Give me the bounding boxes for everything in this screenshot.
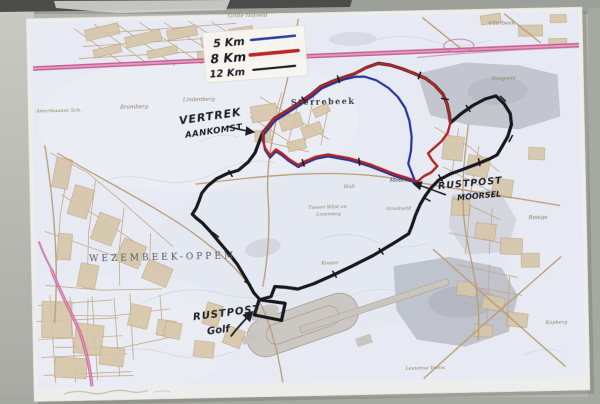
map-label-grootveld: Grootveld <box>386 206 411 213</box>
map-label-rooige: Rooige <box>527 215 548 221</box>
map-label-bromberg: Bromberg <box>119 104 149 111</box>
route-map-photo: Grote Hofveld Lindenberg Sterrebeek Vlie… <box>0 0 600 404</box>
legend-label-5km: 5 Km <box>213 35 245 50</box>
map-label-lindenberg: Lindenberg <box>182 97 216 104</box>
map-label-grote-hofveld: Grote Hofveld <box>228 13 268 20</box>
map-label-vlierbeek: Vlierbeek <box>488 20 516 27</box>
map-label-kapberg: Kapberg <box>545 319 568 325</box>
map-label-tussen-1: Tussen Wilst en <box>308 204 347 211</box>
map-label-tussen-2: Lozenweg <box>315 211 341 218</box>
map-label-hoogveld: Hoogveld <box>490 75 515 82</box>
route-tick <box>359 158 360 166</box>
map-label-moorsel: Moorsel <box>389 178 413 185</box>
map-label-hult: Hult <box>343 184 356 190</box>
photo-of-pinned-route-map: Grote Hofveld Lindenberg Sterrebeek Vlie… <box>0 0 600 404</box>
legend-label-8km: 8 Km <box>210 49 247 67</box>
map-label-sterrebeek: Sterrebeek <box>291 96 356 107</box>
map-label-leuvense-voetw: Leuvense Voetw. <box>404 365 446 372</box>
map-label-amerikaanse: Amerikaanse Sch. <box>35 108 82 115</box>
map-label-kouter: Kouter <box>320 260 339 266</box>
legend: 5 Km 8 Km 12 Km <box>202 26 307 83</box>
